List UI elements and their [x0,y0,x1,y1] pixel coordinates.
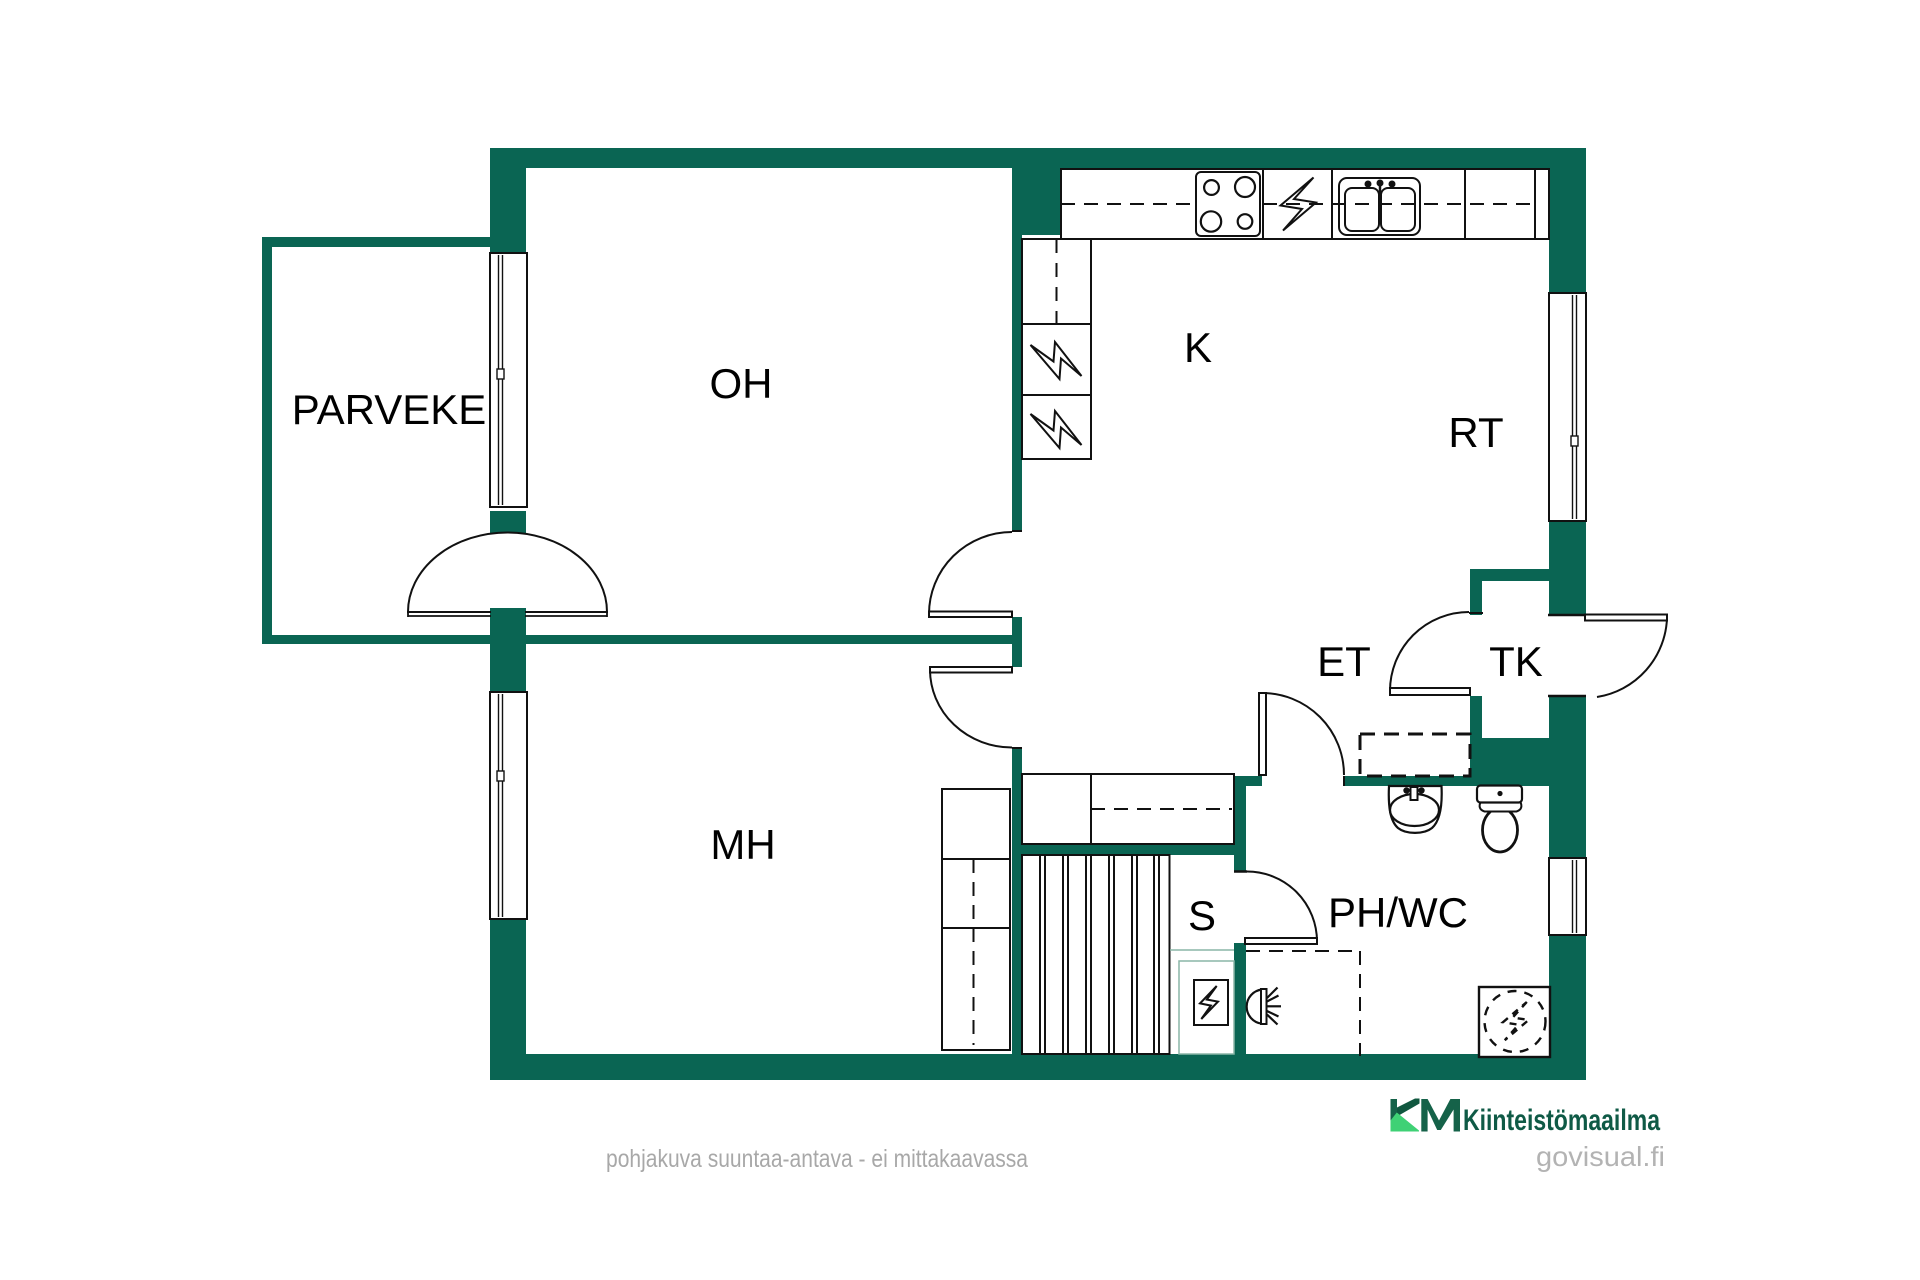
svg-text:govisual.fi: govisual.fi [1536,1141,1665,1172]
svg-text:Kiinteistömaailma: Kiinteistömaailma [1463,1104,1660,1137]
svg-text:PH/WC: PH/WC [1328,889,1468,936]
svg-text:OH: OH [710,360,773,407]
svg-text:RT: RT [1448,409,1503,456]
svg-text:TK: TK [1489,638,1543,685]
svg-text:pohjakuva suuntaa-antava - ei: pohjakuva suuntaa-antava - ei mittakaava… [606,1145,1028,1173]
svg-text:MH: MH [710,821,775,868]
svg-text:ET: ET [1317,638,1371,685]
svg-text:S: S [1188,892,1216,939]
svg-text:K: K [1184,324,1212,371]
svg-text:PARVEKE: PARVEKE [292,386,487,433]
